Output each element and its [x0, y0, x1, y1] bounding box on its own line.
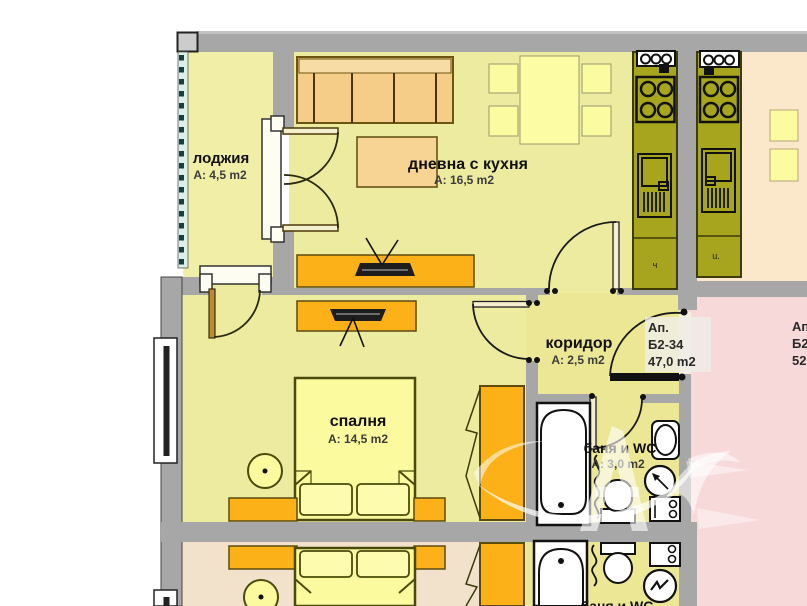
- svg-text:А: 16,5 m2: А: 16,5 m2: [434, 173, 494, 187]
- svg-text:Б2-34: Б2-34: [648, 337, 684, 352]
- svg-text:А: 4,5 m2: А: 4,5 m2: [193, 168, 247, 182]
- svg-text:u.: u.: [712, 251, 720, 261]
- svg-text:спалня: спалня: [330, 413, 387, 430]
- svg-text:коридор: коридор: [546, 335, 613, 352]
- svg-text:52: 52: [792, 353, 806, 368]
- svg-text:Б2: Б2: [792, 336, 807, 351]
- svg-text:Ап: Ап: [792, 319, 807, 334]
- svg-text:лоджия: лоджия: [193, 150, 249, 167]
- svg-text:баня и WC: баня и WC: [581, 598, 654, 606]
- svg-text:47,0 m2: 47,0 m2: [648, 354, 696, 369]
- svg-text:Ап.: Ап.: [648, 320, 669, 335]
- svg-text:дневна с кухня: дневна с кухня: [408, 156, 528, 173]
- svg-text:А: 2,5 m2: А: 2,5 m2: [551, 353, 605, 367]
- svg-text:А: 14,5 m2: А: 14,5 m2: [328, 432, 388, 446]
- svg-text:ч: ч: [653, 260, 658, 270]
